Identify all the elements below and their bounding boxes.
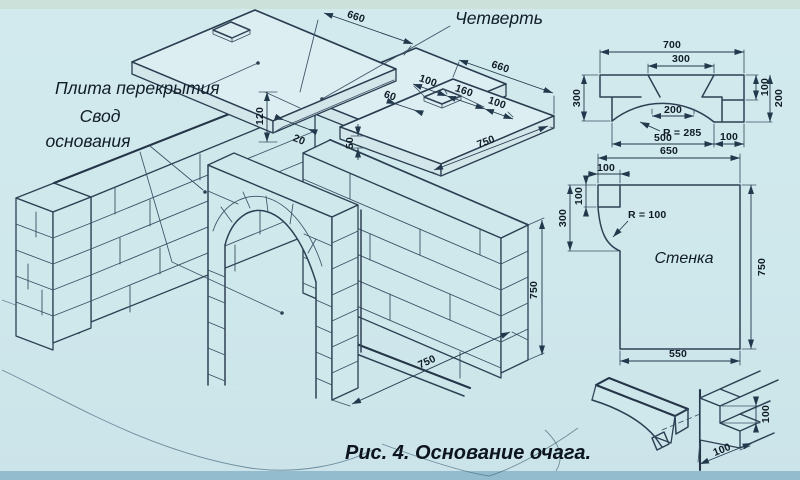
dim-vault-top: 700	[663, 39, 681, 51]
joint-slab-piece	[592, 385, 675, 443]
dim-joint-height: 100	[760, 405, 772, 423]
joint-figure: 100 100	[592, 371, 778, 470]
label-vault-line2: основания	[45, 131, 130, 151]
figure-page: 660 660 100 160 100 60 50 20 120 750 750…	[0, 0, 800, 480]
figure-canvas: 660 660 100 160 100 60 50 20 120 750 750…	[0, 0, 800, 480]
dim-slab-small-width: 660	[490, 58, 511, 75]
dim-vault-right-upper: 100	[759, 78, 771, 96]
dim-slab-thickness: 50	[344, 137, 356, 149]
dim-opening-width: 750	[416, 353, 437, 372]
dim-wall-height: 750	[528, 281, 540, 299]
dim-wall-top: 650	[660, 145, 678, 157]
right-wall-end-face	[501, 225, 528, 373]
dim-gap: 120	[254, 107, 266, 125]
label-cover-slab: Плита перекрытия	[55, 78, 220, 98]
dim-vault-opening-top: 300	[672, 53, 690, 65]
dim-vault-bottom-right: 100	[720, 131, 738, 143]
vault-figure: 700 300 300 200 R = 285 500 100 100 200	[571, 39, 785, 147]
label-quarter: Четверть	[455, 8, 543, 28]
dim-wall-tab-width: 100	[597, 162, 615, 174]
dim-vault-left-height: 300	[571, 89, 583, 107]
dim-wall-radius: R = 100	[628, 209, 666, 221]
dim-vault-bottom-left: 500	[654, 132, 672, 144]
dim-wall-bottom: 550	[669, 348, 687, 360]
dim-slab-left-width: 660	[345, 8, 366, 25]
dim-wall-tab-height: 100	[573, 187, 585, 205]
wall-figure: 650 100 100 300 R = 100 750 550 Стенка	[557, 145, 768, 365]
wall-figure-label: Стенка	[654, 250, 713, 267]
label-vault-line1: Свод	[80, 106, 121, 126]
dim-wall-right-height: 750	[756, 258, 768, 276]
pillar	[16, 183, 91, 350]
dim-vault-right-total: 200	[773, 89, 785, 107]
dim-vault-arch-top: 200	[664, 104, 682, 116]
dim-wall-left-height: 300	[557, 209, 569, 227]
figure-caption: Рис. 4. Основание очага.	[345, 442, 591, 464]
